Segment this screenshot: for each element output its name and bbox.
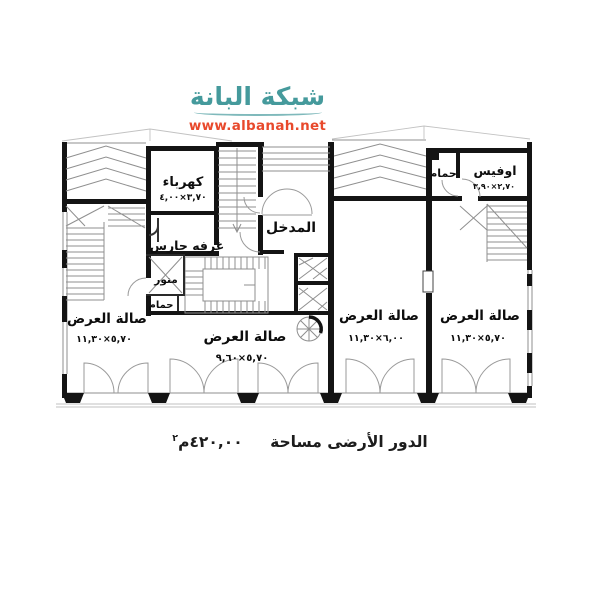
caption-area: ٤٢٠,٠٠م٢ [172, 433, 242, 451]
room-dims-showroom-middle: ٥,٧٠×٩,٦٠ [216, 353, 269, 364]
room-label-entrance: المدخل [266, 220, 316, 236]
spiral-staircase [297, 317, 321, 341]
room-label-showroom-left: صالة العرض [67, 311, 147, 327]
room-label-showroom-middle: صالة العرض [204, 329, 287, 345]
room-label-showroom-center: صالة العرض [339, 308, 419, 324]
elevator-shafts [296, 255, 330, 313]
entrance-staircase [218, 148, 256, 232]
room-label-showroom-right: صالة العرض [440, 308, 520, 324]
room-labels: كهرباء ٣,٧٠×٤,٠٠ المدخل غرفه حارس منور ح… [67, 163, 520, 364]
room-label-office: اوفيس [473, 163, 516, 178]
left-ramp [66, 146, 146, 191]
room-label-electricity: كهرباء [163, 175, 204, 190]
right-ramp [334, 144, 426, 189]
entrance-exterior-steps [262, 147, 330, 171]
room-dims-showroom-right: ٥,٧٠×١١,٣٠ [450, 333, 506, 344]
roof-outline-lines [62, 126, 530, 141]
caption-area-value: ٤٢٠,٠٠ [189, 433, 242, 451]
room-label-bathroom-left: حمام [149, 300, 174, 311]
caption-area-unit: م [178, 433, 189, 451]
room-dims-electricity: ٣,٧٠×٤,٠٠ [159, 193, 206, 203]
floor-plan-page: شبكة البانة www.albanah.net [0, 0, 600, 600]
floor-plan-drawing: كهرباء ٣,٧٠×٤,٠٠ المدخل غرفه حارس منور ح… [0, 0, 600, 600]
storefront-columns [62, 393, 530, 403]
room-label-bathroom-right: حمام [429, 167, 457, 180]
left-staircase [66, 206, 145, 300]
room-dims-showroom-center: ٦,٠٠×١١,٣٠ [348, 333, 404, 344]
right-staircase [460, 204, 527, 262]
room-label-lightwell: منور [153, 274, 177, 286]
central-staircase [185, 257, 268, 313]
room-dims-office: ٢,٧٠×٣,٩٠ [473, 182, 515, 191]
room-dims-showroom-left: ٥,٧٠×١١,٣٠ [76, 334, 132, 345]
caption-label: الدور الأرضى مساحة [270, 433, 428, 451]
floor-caption: الدور الأرضى مساحة ٤٢٠,٠٠م٢ [0, 433, 600, 451]
room-label-guard: غرفه حارس [150, 238, 225, 253]
